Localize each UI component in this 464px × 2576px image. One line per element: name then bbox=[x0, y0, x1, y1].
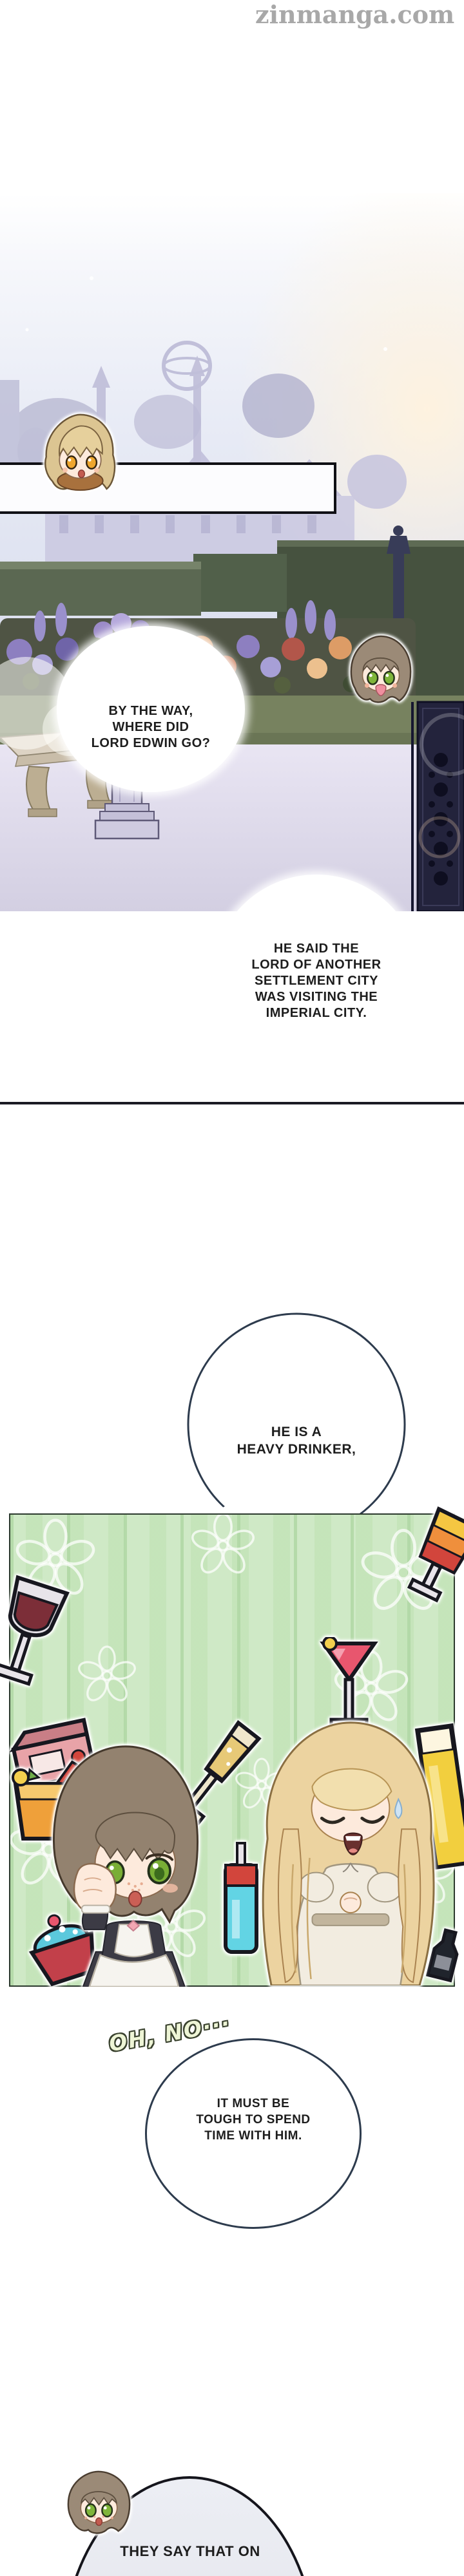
ornamental-gate bbox=[412, 702, 464, 911]
chibi-head-brown-sticker-2 bbox=[63, 2468, 135, 2535]
speech-bubble-1: BY THE WAY, WHERE DID LORD EDWIN GO? bbox=[57, 626, 245, 792]
bubble-line: HE IS A bbox=[213, 1423, 380, 1441]
chibi-maid bbox=[39, 1739, 213, 1987]
bubble-line: BY THE WAY, bbox=[92, 703, 211, 719]
speech-bubble-2: HE SAID THE LORD OF ANOTHER SETTLEMENT C… bbox=[211, 875, 421, 1087]
speech-bubble-5: IT MUST BE TOUGH TO SPEND TIME WITH HIM. bbox=[145, 2038, 362, 2229]
chibi-head-blonde-sticker bbox=[39, 410, 121, 495]
bubble-line: LORD OF ANOTHER bbox=[251, 957, 381, 973]
speech-bubble-5-text: IT MUST BE TOUGH TO SPEND TIME WITH HIM. bbox=[196, 2096, 310, 2144]
speech-bubble-6-text: THEY SAY THAT ON bbox=[84, 2543, 296, 2560]
panel-garden-scene: BY THE WAY, WHERE DID LORD EDWIN GO? HE … bbox=[0, 193, 464, 911]
bubble-line: LORD EDWIN GO? bbox=[92, 735, 211, 752]
stone-path bbox=[0, 744, 464, 911]
bubble-line: TIME WITH HIM. bbox=[196, 2128, 310, 2144]
bubble-line: TOUGH TO SPEND bbox=[196, 2112, 310, 2128]
bubble-line: WHERE DID bbox=[92, 719, 211, 735]
chibi-blonde-girl bbox=[247, 1711, 447, 1985]
garden-scene-illustration bbox=[0, 193, 464, 911]
panel-border-bottom bbox=[0, 1102, 464, 1104]
speech-bubble-1-text: BY THE WAY, WHERE DID LORD EDWIN GO? bbox=[92, 703, 211, 752]
bubble-line: HE SAID THE bbox=[251, 941, 381, 957]
manga-page: zinmanga.com bbox=[0, 0, 464, 2576]
bubble-line: IMPERIAL CITY. bbox=[251, 1005, 381, 1021]
speech-bubble-2-text: HE SAID THE LORD OF ANOTHER SETTLEMENT C… bbox=[251, 941, 381, 1021]
site-watermark: zinmanga.com bbox=[255, 0, 454, 29]
bubble-line: IT MUST BE bbox=[196, 2096, 310, 2112]
bubble-line: SETTLEMENT CITY bbox=[251, 973, 381, 989]
bubble-line: WAS VISITING THE bbox=[251, 989, 381, 1005]
bubble-line: HEAVY DRINKER, bbox=[213, 1441, 380, 1458]
panel-chibi-drinks bbox=[9, 1513, 455, 1987]
chibi-head-brown-sticker bbox=[346, 632, 416, 705]
bubble-line: THEY SAY THAT ON bbox=[84, 2543, 296, 2560]
speech-bubble-3-text: HE IS A HEAVY DRINKER, bbox=[213, 1423, 380, 1458]
